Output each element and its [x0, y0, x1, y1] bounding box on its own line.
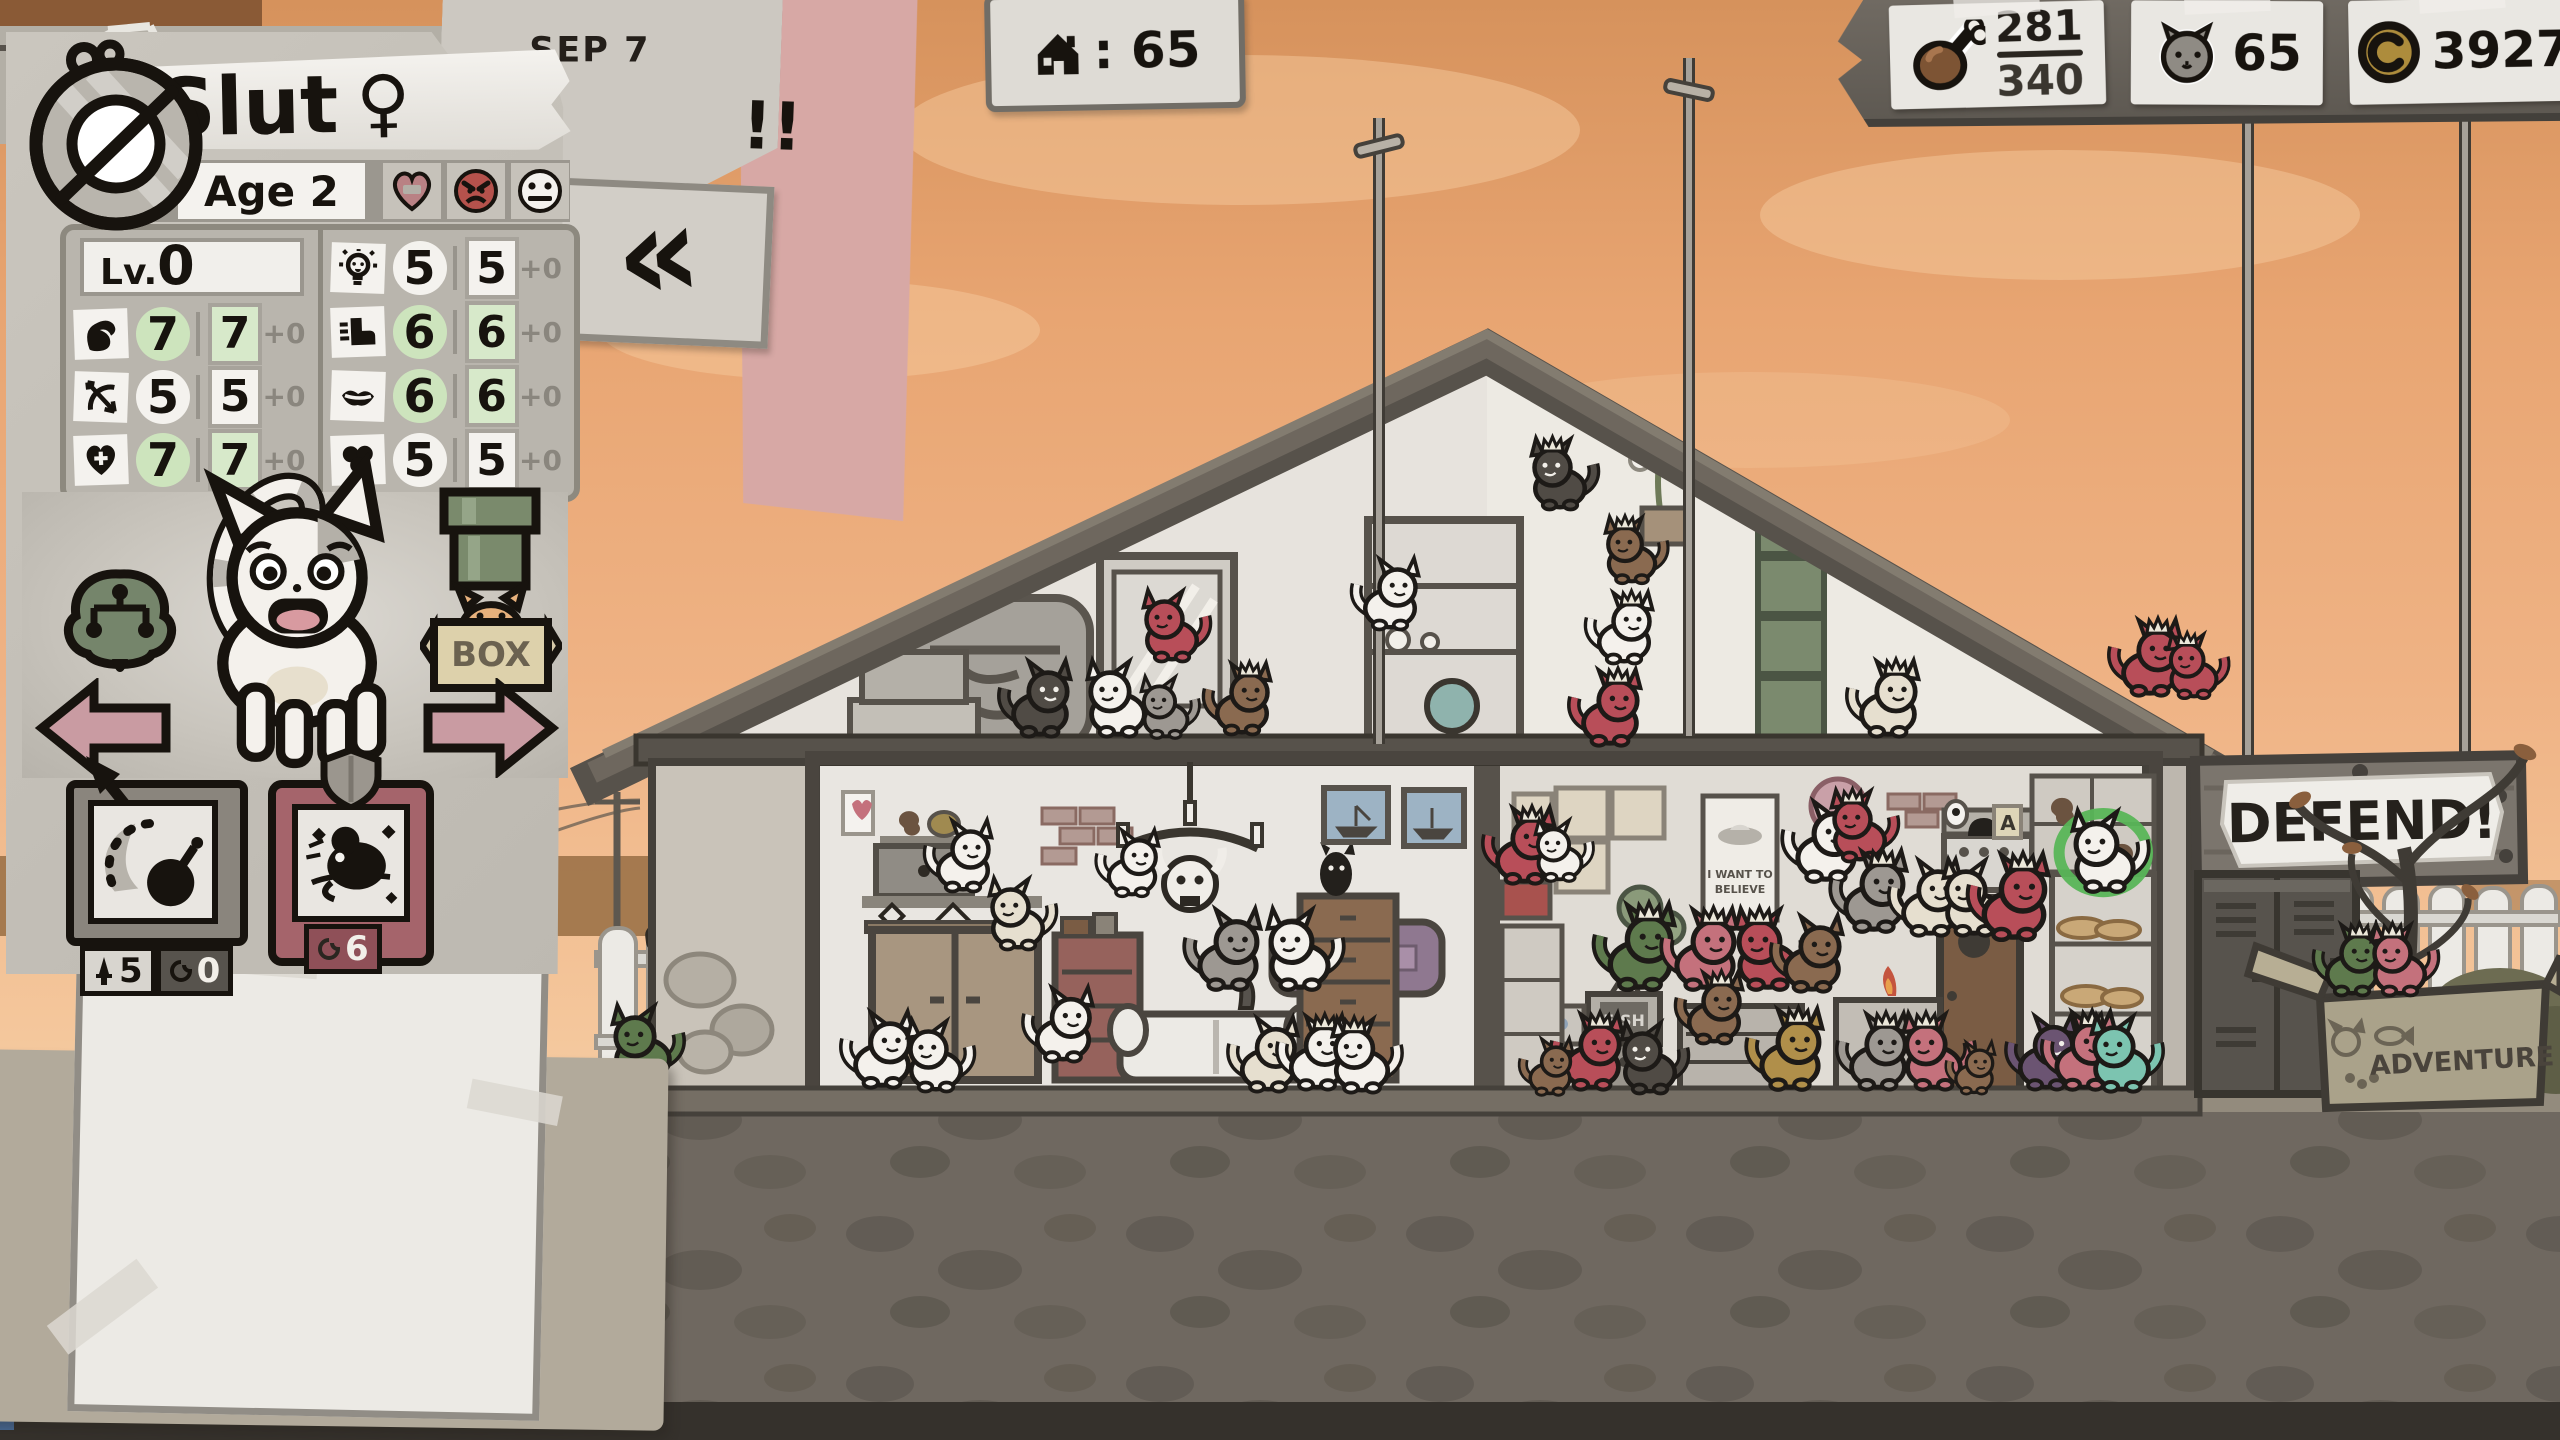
svg-text:BELIEVE: BELIEVE — [1715, 883, 1766, 896]
attack-value: 5 — [119, 951, 143, 991]
tape — [2419, 0, 2506, 14]
cat-counter: 65 — [2131, 0, 2324, 105]
charisma-icon — [330, 370, 386, 422]
defend-station[interactable]: DEFEND! — [2195, 0, 2523, 885]
ability-slot-bomb[interactable]: 5 0 — [66, 780, 248, 946]
uses-chip: 6 — [304, 924, 382, 974]
game-screen: I WANT TO BELIEVE A — [0, 0, 2560, 1440]
coin-counter: 3927 — [2348, 0, 2560, 105]
next-cat-arrow[interactable] — [420, 678, 560, 778]
cat[interactable] — [2168, 632, 2225, 698]
portrait-panel: BOX — [22, 492, 568, 778]
level-plate: Lv. 0 — [80, 238, 304, 296]
cat-head-icon — [2152, 18, 2222, 86]
rat-icon — [292, 804, 410, 922]
dexterity-icon — [73, 371, 129, 423]
mood-icons — [383, 163, 569, 219]
ability-slot-rat[interactable]: 6 — [268, 780, 434, 966]
cat-count-value: 65 — [2232, 24, 2302, 82]
pipe-button[interactable] — [438, 486, 542, 594]
shield-icon — [318, 748, 384, 810]
gender-symbol: ♀ — [355, 59, 411, 146]
drumstick-icon — [1911, 19, 1987, 93]
shelf-tag: A — [1994, 806, 2021, 838]
stat-row-speed: 6 6 +0 — [331, 300, 573, 364]
coin-icon — [2355, 19, 2422, 86]
stat-row-dexterity: 5 5 +0 — [74, 365, 316, 428]
uses-value: 0 — [197, 951, 221, 991]
vitality-icon — [73, 434, 129, 486]
prohibition-badge-icon[interactable] — [14, 32, 219, 237]
stat-row-strength: 7 7 +0 — [74, 302, 316, 365]
ability-slots: 5 0 — [46, 768, 426, 988]
uses-value: 6 — [345, 929, 369, 969]
box-button-label: BOX — [451, 635, 531, 675]
resource-bar: 281 340 65 3927 — [1837, 0, 2560, 127]
character-panel: Slut ♀ Age 2 — [6, 26, 581, 1421]
double-chevron-left-icon: « — [610, 184, 708, 324]
swirl-icon — [169, 959, 193, 983]
food-counter: 281 340 — [1889, 0, 2107, 110]
neutral-face-icon[interactable] — [511, 163, 569, 219]
sword-icon — [93, 956, 115, 986]
house-population-value: : 65 — [1093, 21, 1201, 81]
blank-note-paper — [67, 951, 549, 1421]
uses-chip: 0 — [156, 946, 234, 996]
believe-poster: I WANT TO BELIEVE — [1703, 796, 1777, 920]
tape — [2184, 0, 2271, 15]
family-tree-button[interactable] — [60, 566, 180, 684]
svg-text:A: A — [2000, 811, 2016, 835]
attack-chip: 5 — [80, 946, 156, 996]
intelligence-icon — [330, 242, 386, 294]
swirl-icon — [317, 937, 341, 961]
bomb-lob-icon — [88, 800, 218, 924]
angry-face-icon[interactable] — [447, 163, 505, 219]
speed-icon — [330, 306, 386, 358]
character-cat-portrait[interactable] — [140, 452, 450, 782]
house-icon — [1029, 25, 1086, 80]
date-alert: !! — [741, 87, 804, 166]
house-population-counter: : 65 — [984, 0, 1246, 112]
coin-count-value: 3927 — [2431, 20, 2560, 81]
food-max: 340 — [1996, 59, 2085, 103]
cat[interactable] — [2372, 923, 2434, 996]
svg-text:I WANT TO: I WANT TO — [1707, 868, 1772, 881]
stat-row-intelligence: 5 5 +0 — [331, 236, 573, 300]
food-fraction: 281 340 — [1994, 5, 2084, 103]
stat-row-charisma: 6 6 +0 — [331, 364, 573, 428]
heart-minus-icon[interactable] — [383, 163, 441, 219]
strength-icon — [73, 308, 129, 360]
